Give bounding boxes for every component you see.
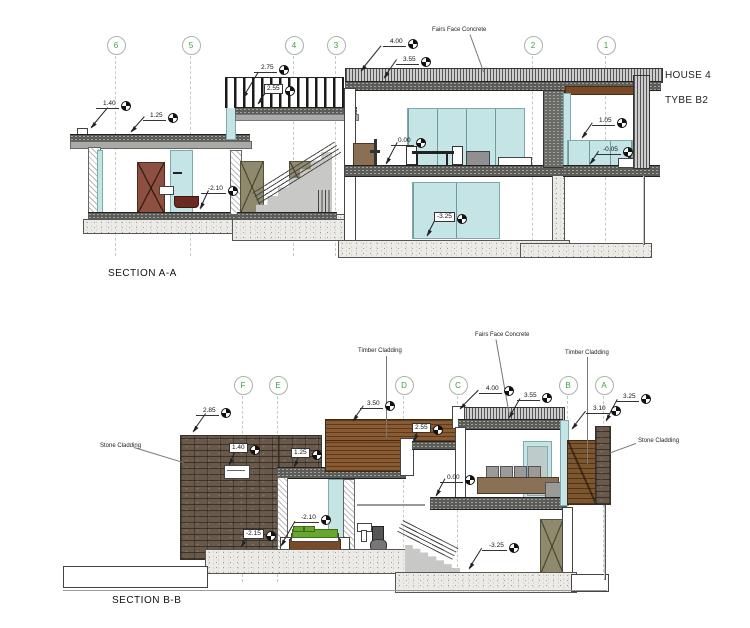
timber-clad-stair (567, 440, 597, 505)
wall-niche-shelf (227, 470, 245, 471)
ground-line (63, 590, 607, 591)
level-icon (457, 214, 467, 224)
note-leader (496, 339, 510, 414)
level-icon (416, 138, 426, 148)
roof-b-deck (458, 419, 563, 430)
level-icon (611, 406, 621, 416)
level-marker: -0.05 (596, 146, 633, 155)
basement-door (540, 519, 564, 574)
dining-left-wall (455, 427, 466, 502)
level-marker: 1.40 (229, 443, 260, 453)
grid-bubble-5: 5 (182, 36, 201, 55)
level-icon (617, 118, 627, 128)
wall-niche (224, 465, 250, 479)
section-b-label: SECTION B-B (112, 595, 181, 606)
level-arrow (91, 107, 108, 128)
desk-cabinet (353, 143, 375, 167)
level-arrow (572, 411, 586, 429)
level-icon (312, 450, 322, 460)
level-marker: 4.00 (383, 38, 418, 47)
level-marker: 3.55 (396, 56, 431, 65)
grid-bubble-a: A (595, 376, 614, 395)
right-boundary-dashed (643, 175, 645, 245)
left-wing-base-slab (83, 219, 247, 234)
level-marker: 2.55 (264, 84, 295, 94)
level-marker: -2.10 (201, 185, 238, 194)
material-note-stone-cladding-right: Stone Cladding (638, 438, 679, 444)
pergola-band (235, 114, 359, 121)
level-marker: -2.10 (294, 514, 331, 523)
basement-right-wall (552, 175, 565, 243)
material-note-fair-face-concrete: Fairs Face Concrete (475, 332, 529, 338)
level-icon (121, 101, 131, 111)
dining-floor-slab (430, 497, 567, 510)
material-note-stone-cladding-left: Stone Cladding (100, 443, 141, 449)
grid-bubble-2: 2 (524, 36, 543, 55)
boundary-dashed-b (604, 505, 606, 580)
level-icon (542, 393, 552, 403)
level-icon (250, 445, 260, 455)
level-marker: -3.25 (482, 542, 519, 551)
left-ground-ledge (63, 566, 208, 588)
material-note-timber-cladding-right: Timber Cladding (565, 350, 609, 356)
level-marker: 3.25 (616, 393, 651, 402)
level-icon (285, 86, 295, 96)
timber-roof-lower (325, 440, 402, 472)
bed-pillow (293, 526, 304, 532)
project-type: TYBE B2 (665, 95, 708, 106)
material-note-fair-face-concrete: Fairs Face Concrete (432, 27, 486, 33)
level-marker: 3.10 (586, 405, 621, 414)
right-wing-timber-band (565, 86, 635, 95)
level-icon (421, 57, 431, 67)
dining-table-leg-right (446, 154, 448, 165)
level-marker: -3.25 (434, 212, 467, 222)
level-icon (465, 475, 475, 485)
level-icon (221, 408, 231, 418)
level-icon (168, 113, 178, 123)
grid-bubble-3: 3 (327, 36, 346, 55)
level-marker: 1.40 (96, 100, 131, 109)
level-icon (433, 425, 443, 435)
note-leader (134, 447, 184, 463)
note-leader (610, 443, 637, 454)
level-icon (385, 401, 395, 411)
grid-bubble-f: F (234, 376, 253, 395)
level-marker: 0.00 (391, 137, 426, 146)
level-icon (279, 65, 289, 75)
vanity-unit (174, 196, 199, 208)
level-marker: 2.85 (196, 407, 231, 416)
upper-deck (412, 441, 458, 450)
foundation-slab-right (520, 243, 652, 258)
left-wing-glazing (97, 150, 103, 214)
right-wing-clad-column (633, 75, 650, 169)
drawing-canvas: 6 5 4 3 2 1 1.40 1.25 2.75 2.55 4.00 3.5… (0, 0, 750, 628)
level-marker: 1.25 (143, 112, 178, 121)
tv-screen (466, 151, 490, 166)
level-marker: 1.05 (592, 117, 627, 126)
note-leader (470, 34, 485, 72)
bed-pillow (304, 526, 315, 532)
bedroom-base-slab (205, 549, 407, 574)
level-arrow (361, 45, 382, 70)
desk-chair-seat (370, 150, 380, 153)
section-a-label: SECTION A-A (108, 268, 177, 279)
grid-bubble-e: E (269, 376, 288, 395)
level-marker: 0.00 (440, 474, 475, 483)
basin-pedestal (361, 530, 367, 542)
grid-bubble-4: 4 (285, 36, 304, 55)
level-marker: 2.55 (412, 423, 443, 433)
stair-zone-base (232, 219, 350, 241)
grid-bubble-d: D (395, 376, 414, 395)
level-marker: 3.50 (360, 400, 395, 409)
grid-bubble-b: B (559, 376, 578, 395)
level-icon (641, 394, 651, 404)
project-title: HOUSE 4 (665, 70, 711, 81)
stone-cladding-wall (180, 435, 280, 560)
main-right-wall (543, 90, 565, 168)
level-marker: 3.55 (517, 392, 552, 401)
level-icon (408, 39, 418, 49)
grid-bubble-c: C (449, 376, 468, 395)
level-icon (266, 531, 276, 541)
material-note-timber-cladding: Timber Cladding (358, 348, 402, 354)
basement-glass-doors (412, 182, 500, 239)
shower-handle (173, 172, 182, 174)
dining-chair-right (452, 146, 463, 165)
level-marker: 2.75 (254, 64, 289, 73)
bath-shelf (357, 504, 425, 506)
level-icon (228, 186, 238, 196)
grid-bubble-6: 6 (107, 36, 126, 55)
level-icon (623, 147, 633, 157)
level-marker: 1.25 (291, 448, 322, 458)
dining-table-leg-left (416, 154, 418, 165)
level-marker: 4.00 (479, 385, 514, 394)
level-icon (509, 543, 519, 553)
level-icon (321, 515, 331, 525)
note-leader (386, 356, 387, 438)
wash-basin (159, 186, 174, 195)
level-icon (504, 386, 514, 396)
basement-right-wall-b (562, 507, 573, 575)
level-marker: -2.15 (243, 529, 276, 539)
level-arrow (469, 548, 483, 569)
grid-bubble-1: 1 (597, 36, 616, 55)
right-wing-cabinet (618, 158, 634, 168)
stone-clad-column (595, 426, 611, 505)
